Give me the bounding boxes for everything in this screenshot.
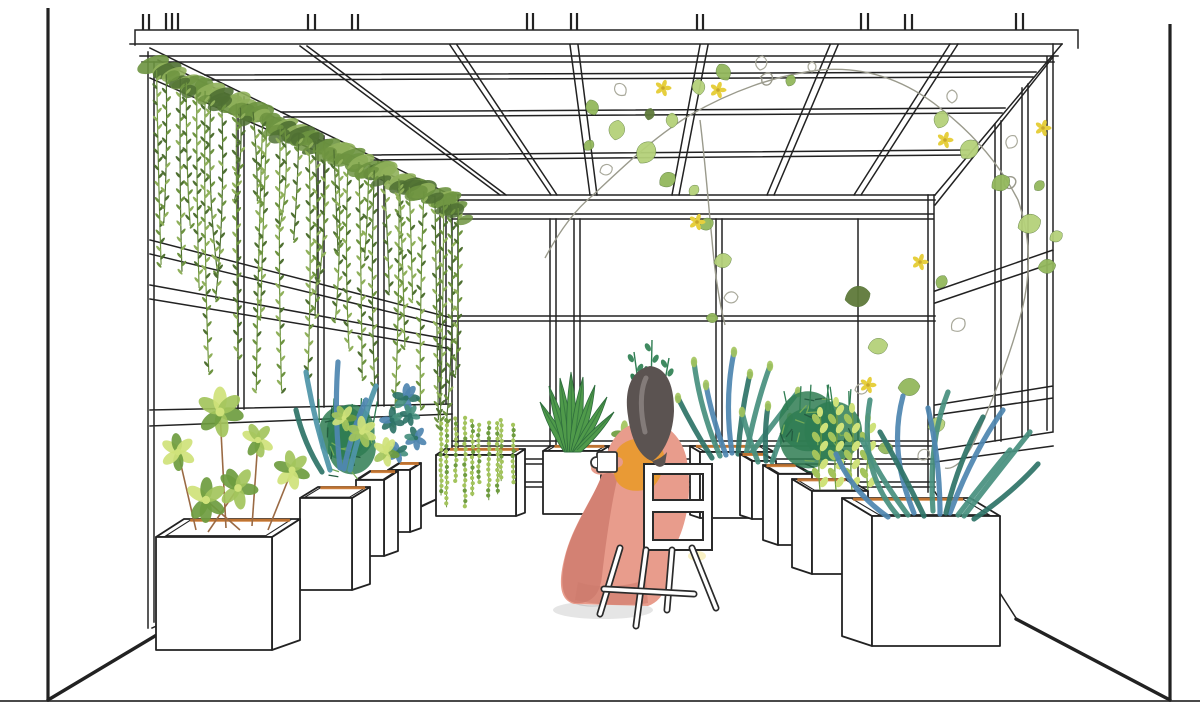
illustration-canvas <box>0 0 1200 718</box>
mug-handle <box>591 457 597 468</box>
coffee-mug <box>597 452 617 472</box>
greenhouse-illustration <box>0 0 1200 718</box>
